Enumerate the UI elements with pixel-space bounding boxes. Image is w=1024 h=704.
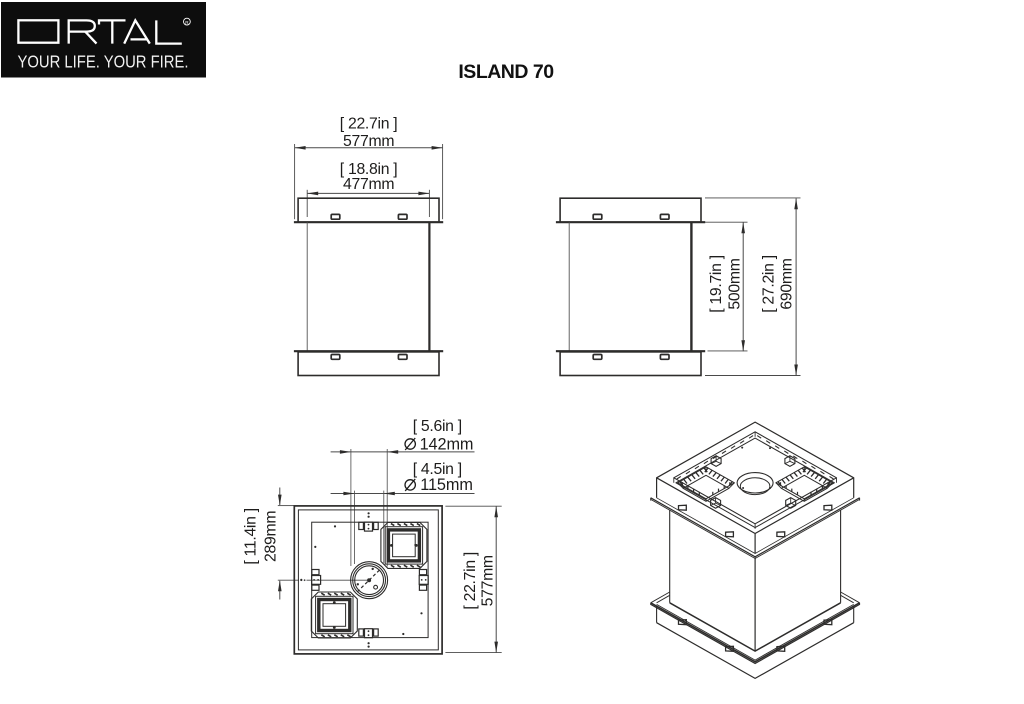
- svg-text:[ 22.7in ]: [ 22.7in ]: [340, 115, 398, 132]
- svg-text:[ 19.7in ]: [ 19.7in ]: [708, 255, 725, 313]
- svg-text:[ 5.6in ]: [ 5.6in ]: [413, 418, 462, 435]
- svg-text:690mm: 690mm: [778, 258, 795, 309]
- svg-text:ISLAND 70: ISLAND 70: [458, 61, 554, 83]
- svg-text:[ 27.2in ]: [ 27.2in ]: [761, 255, 778, 313]
- svg-text:500mm: 500mm: [726, 258, 743, 309]
- svg-text:YOUR LIFE. YOUR FIRE.: YOUR LIFE. YOUR FIRE.: [18, 52, 189, 72]
- svg-text:115mm: 115mm: [420, 476, 473, 494]
- svg-text:[ 22.7in ]: [ 22.7in ]: [462, 552, 479, 610]
- svg-text:289mm: 289mm: [262, 511, 279, 562]
- svg-text:[ 11.4in ]: [ 11.4in ]: [242, 508, 259, 564]
- svg-text:577mm: 577mm: [479, 555, 496, 606]
- svg-text:477mm: 477mm: [343, 176, 394, 193]
- svg-text:142mm: 142mm: [420, 435, 474, 453]
